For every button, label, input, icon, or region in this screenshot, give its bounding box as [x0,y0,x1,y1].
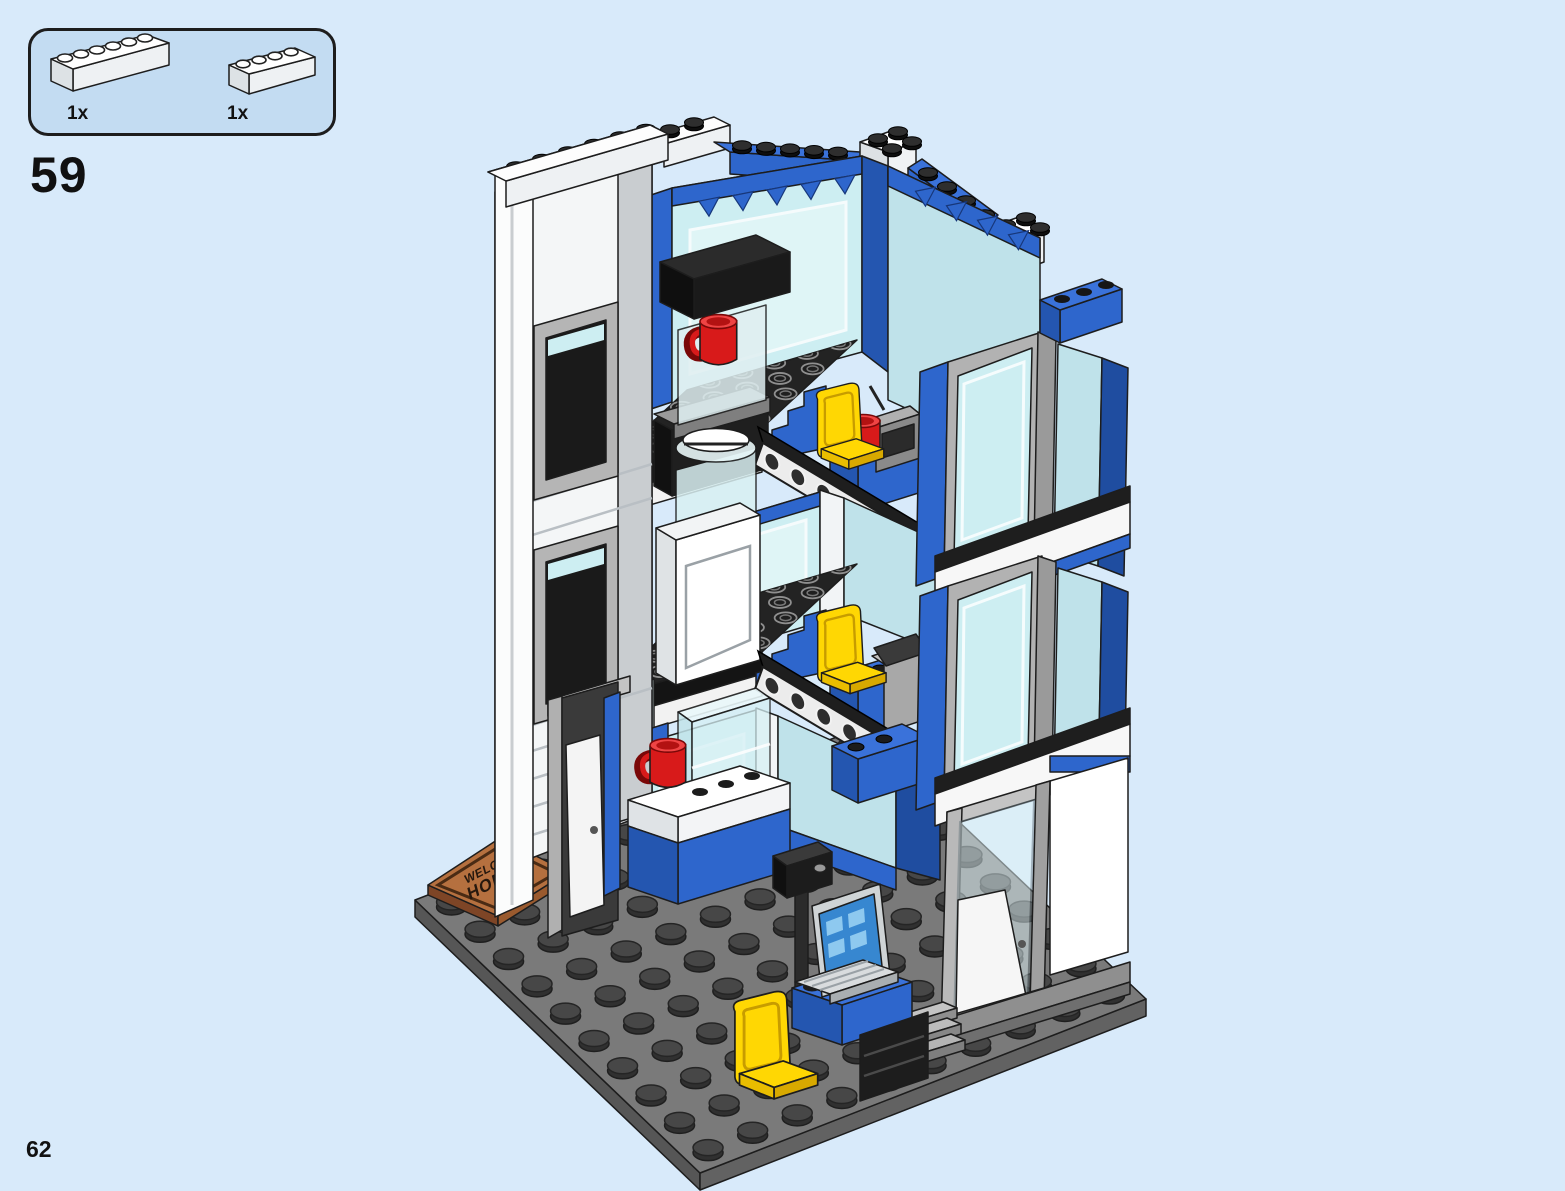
entrance-doorway [548,676,630,938]
window-opening-floor3 [534,302,618,500]
corner-tower [916,279,1130,1054]
tower-floor1-wall [1050,758,1128,975]
model-illustration: WELCOME HOME [0,0,1565,1191]
tower-top-cap [1040,279,1122,343]
